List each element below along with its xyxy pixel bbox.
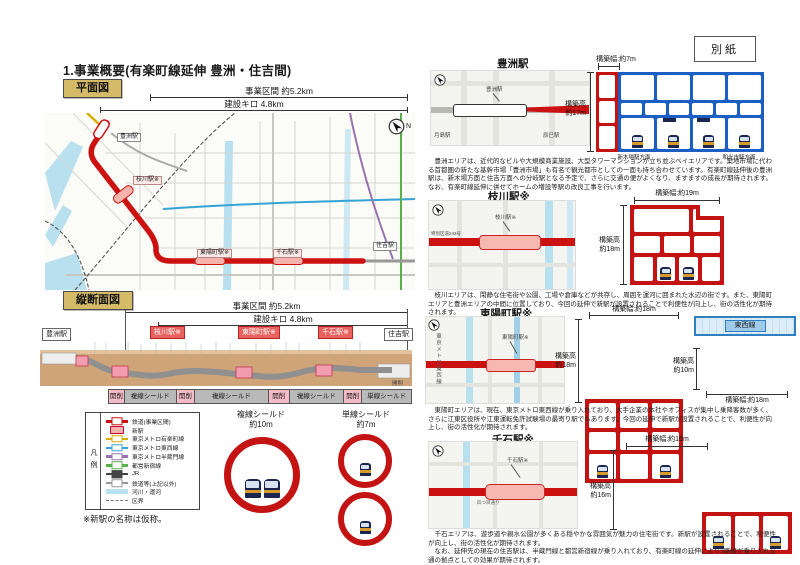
legend-item: 鉄道等(上記以外) <box>106 479 194 487</box>
compass-icon <box>428 319 440 331</box>
method-bar: 開削 複線シールド 開削 複線シールド 開削 複線シールド 開削 単線シールド <box>108 389 412 404</box>
sengoku-minimap: 千石駅※ 四つ目通り <box>428 441 578 529</box>
legend-item: 新駅 <box>106 426 194 434</box>
train-icon <box>660 465 671 478</box>
map-road <box>429 462 577 466</box>
toyocho-height-value: 約18m <box>542 362 576 370</box>
width-dim-line <box>634 200 720 201</box>
plan-label-sengoku: 千石駅※ <box>273 249 302 258</box>
profile-dim-business-label: 事業区間 約5.2km <box>125 302 408 311</box>
plan-label-toyosu: 豊洲駅 <box>117 133 141 142</box>
train-icon <box>245 479 261 498</box>
method-segment: 単線シールド <box>362 390 411 403</box>
sengoku-map-station-label: 千石駅※ <box>507 456 528 464</box>
train-icon <box>360 521 371 534</box>
legend-item: 鉄道(事業区間) <box>106 417 194 425</box>
width-dim-line <box>706 394 788 395</box>
profile-cut-label: 開削 <box>392 379 403 387</box>
height-dim-line <box>696 348 697 390</box>
edagawa-station-box <box>479 235 541 250</box>
plan-dim-business: 事業区間 約5.2km <box>150 87 408 98</box>
train-route-label-box <box>697 118 710 122</box>
toyocho-width-label: 構築幅:約18m <box>585 306 683 314</box>
height-dim-line <box>590 72 591 152</box>
sengoku-height-label: 構築高 <box>577 483 611 491</box>
method-segment: 複線シールド <box>125 390 177 403</box>
sengoku-description: 千石エリアは、遊歩道や親水公園が多くある穏やかな雰囲気が魅力の住宅街です。新駅が… <box>428 531 776 548</box>
height-dim-line <box>613 450 614 530</box>
toyosu-height-value: 約17m <box>552 110 586 118</box>
structure-cell <box>599 75 615 98</box>
profile-label-toyocho: 東陽町駅※ <box>238 326 280 339</box>
dimension-line <box>158 325 408 326</box>
edagawa-road-label: 特別区道243号 <box>431 231 461 237</box>
toyosu-station-box <box>453 104 527 117</box>
single-shield-title: 単線シールド 約7m <box>320 410 412 429</box>
profile-dim-business: 事業区間 約5.2km <box>125 302 408 313</box>
jr-line-swatch <box>106 471 128 478</box>
legend-item: 区界 <box>106 497 194 505</box>
structure-row <box>634 236 720 254</box>
compass-north-label: N <box>406 123 411 130</box>
toyosu-description: 豊洲エリアは、近代的なビルや大規模商業施設、大型タワーマンションが立ち並ぶベイエ… <box>428 158 772 192</box>
legend-item: JR <box>106 470 194 478</box>
height-dim-line <box>578 319 579 403</box>
structure-cell <box>599 101 615 124</box>
plan-label-toyocho: 東陽町駅※ <box>197 249 232 258</box>
method-segment: 複線シールド <box>195 390 269 403</box>
edagawa-cross-section <box>630 205 724 285</box>
edagawa-minimap: 枝川駅※ 特別区道243号 <box>428 200 576 290</box>
toyocho-height-label: 構築高 <box>542 353 576 361</box>
dimension-line <box>100 110 408 111</box>
edagawa-height-value: 約18m <box>586 246 620 254</box>
plan-map <box>45 113 415 290</box>
method-segment: 開削 <box>269 390 290 403</box>
page-title: 1.事業概要(有楽町線延伸 豊洲・住吉間) <box>63 60 292 79</box>
map-road <box>429 263 575 267</box>
train-icon <box>264 479 280 498</box>
height-dim-line <box>623 205 624 285</box>
sengoku-station-marker <box>273 258 303 265</box>
tozai-band-label: 東西線 <box>725 320 766 332</box>
structure-cell <box>599 126 615 149</box>
train-icon <box>632 135 643 148</box>
map-road <box>426 383 564 387</box>
toyosu-map-station-label: 豊洲駅 <box>486 85 503 93</box>
method-segment: 開削 <box>177 390 195 403</box>
document-page: 1.事業概要(有楽町線延伸 豊洲・住吉間) 別紙 平面図 事業区間 約5.2km… <box>0 0 800 565</box>
train-icon <box>597 465 608 478</box>
plan-label-edagawa: 枝川駅※ <box>133 176 162 185</box>
width-dim-line <box>598 66 620 67</box>
train-icon <box>668 135 679 148</box>
plan-dim-construction-label: 建設キロ 4.8km <box>100 100 408 109</box>
sengoku-road-label: 四つ目通り <box>477 500 500 506</box>
toyocho2-width-label: 構築幅:約18m <box>702 397 792 405</box>
ground-surface <box>40 350 412 354</box>
compass-icon <box>432 204 444 216</box>
toyosu-width-label: 構築幅:約7m <box>576 56 656 64</box>
route-line-swatch <box>106 418 128 425</box>
tozai-line-swatch <box>106 444 128 451</box>
sheet-tag: 別紙 <box>694 36 756 62</box>
tozai-line-label: 東京メトロ東西線 <box>434 333 442 399</box>
train-icon <box>660 267 671 280</box>
compass-icon <box>432 445 444 457</box>
compass-icon <box>434 74 446 86</box>
river-swatch <box>106 488 128 495</box>
profile-view-tag: 縦断面図 <box>63 291 133 310</box>
structure-row <box>634 257 720 281</box>
profile-drawing <box>40 340 412 386</box>
train-icon <box>683 267 694 280</box>
yurakucho-line-swatch <box>106 435 128 442</box>
plan-view-tag: 平面図 <box>63 79 122 98</box>
single-shield-circle <box>338 492 392 546</box>
profile-label-edagawa: 枝川駅※ <box>150 326 185 339</box>
legend: 凡例 鉄道(事業区間) 新駅 東京メトロ有楽町線 東京メトロ東西線 東京メトロ半… <box>85 412 200 510</box>
new-station-note: ※新駅の名称は仮称。 <box>83 513 167 525</box>
edagawa-width-label: 構築幅:約19m <box>628 190 726 198</box>
plan-dim-business-label: 事業区間 約5.2km <box>150 87 408 96</box>
width-dim-line <box>626 446 708 447</box>
toyocho-station-marker <box>195 258 225 265</box>
method-segment: 開削 <box>109 390 125 403</box>
other-rail-swatch <box>106 480 128 487</box>
legend-item: 河川・運河 <box>106 488 194 496</box>
toyocho2-height-label: 構築高 <box>660 358 694 366</box>
profile-dim-construction-label: 建設キロ 4.8km <box>158 315 408 324</box>
structure-row <box>621 103 761 115</box>
toyocho-station-box <box>486 359 536 372</box>
toyocho-description: 東陽町エリアは、現在、東京メトロ東西線が乗り入れており、大手企業の本社やオフィス… <box>428 407 772 433</box>
double-shield-title: 複線シールド 約10m <box>205 410 317 429</box>
shinjuku-line-swatch <box>106 462 128 469</box>
legend-title: 凡例 <box>86 413 101 509</box>
new-station-swatch <box>106 427 128 434</box>
method-segment: 開削 <box>344 390 362 403</box>
tatsumi-label: 辰巳駅 <box>543 131 560 139</box>
legend-item: 東京メトロ有楽町線 <box>106 435 194 443</box>
plan-dim-construction: 建設キロ 4.8km <box>100 100 408 111</box>
toyocho2-height-value: 約10m <box>660 367 694 375</box>
compass: N <box>388 118 411 135</box>
new-structure <box>596 72 618 152</box>
structure-notch <box>696 205 724 220</box>
train-icon <box>703 135 714 148</box>
profile-dim-construction: 建設キロ 4.8km <box>158 315 408 326</box>
leader-line <box>511 464 521 478</box>
train-icon <box>739 135 750 148</box>
toyosu-height-label: 構築高 <box>552 101 586 109</box>
sengoku-station-box <box>485 484 545 500</box>
width-dim-line <box>589 315 679 316</box>
sengoku-width-label: 構築幅:約16m <box>620 436 714 444</box>
legend-item: 東京メトロ東西線 <box>106 444 194 452</box>
hanzomon-line-swatch <box>106 453 128 460</box>
train-icon <box>360 463 371 476</box>
structure-row <box>589 454 679 479</box>
boundary-swatch <box>106 497 128 504</box>
single-shield-circle <box>338 434 392 488</box>
edagawa-map-station-label: 枝川駅※ <box>495 213 516 221</box>
edagawa-height-label: 構築高 <box>586 237 620 245</box>
method-segment: 複線シールド <box>290 390 345 403</box>
tozai-band: 東西線 <box>694 316 796 336</box>
double-shield-circle <box>224 437 300 513</box>
legend-item: 都営新宿線 <box>106 461 194 469</box>
sengoku-description-2: なお、延伸先の現在の住吉駅は、半蔵門線と都営新宿線が乗り入れており、有楽町線の延… <box>428 548 776 565</box>
map-river <box>466 317 473 403</box>
legend-item: 東京メトロ半蔵門線 <box>106 452 194 460</box>
structure-row <box>621 75 761 100</box>
existing-structure <box>618 72 764 152</box>
map-river <box>463 442 470 528</box>
toyosu-title: 豊洲駅 <box>497 56 529 71</box>
toyosu-existing-station <box>42 353 76 364</box>
legend-items: 鉄道(事業区間) 新駅 東京メトロ有楽町線 東京メトロ東西線 東京メトロ半蔵門線… <box>101 413 199 509</box>
sengoku-height-value: 約16m <box>577 492 611 500</box>
structure-row <box>621 118 761 149</box>
compass-icon <box>388 118 405 135</box>
toyosu-cross-section <box>596 72 764 152</box>
tsukishima-label: 月島駅 <box>434 131 451 139</box>
plan-label-sumiyoshi: 住吉駅 <box>373 242 397 251</box>
toyocho-map-station-label: 東陽町駅※ <box>502 333 529 341</box>
profile-label-sengoku: 千石駅※ <box>318 326 353 339</box>
map-road <box>431 81 589 86</box>
train-route-label-box <box>663 118 676 122</box>
